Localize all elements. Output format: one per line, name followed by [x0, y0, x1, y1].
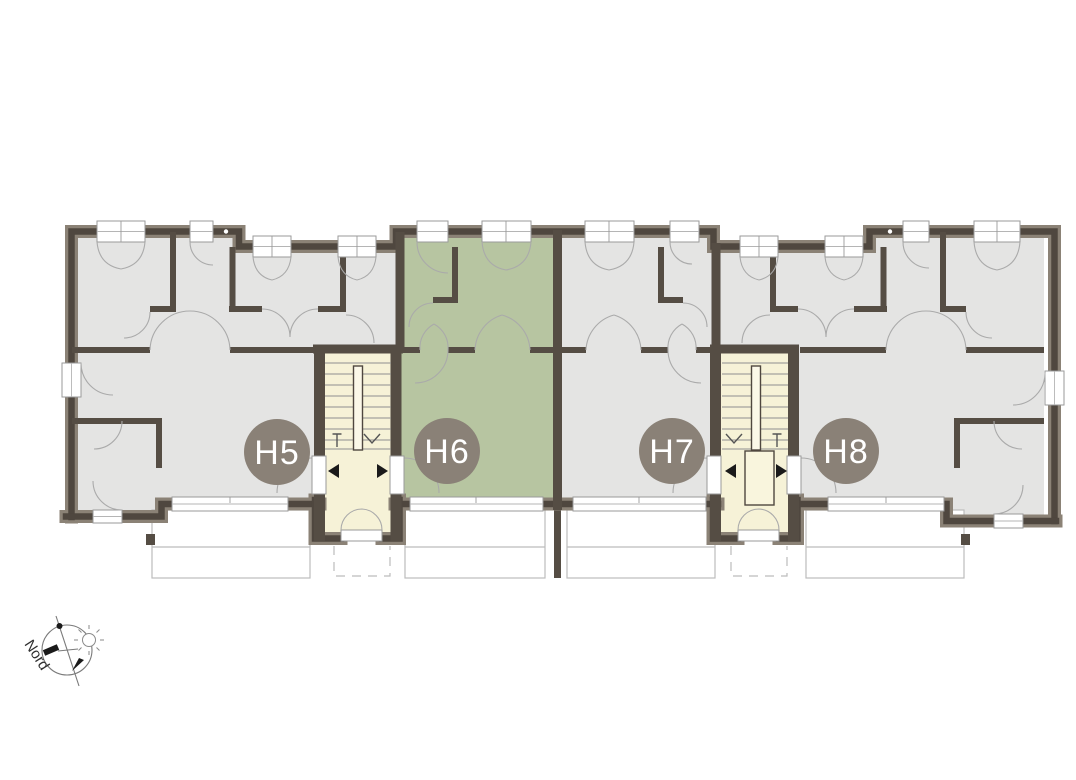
entrance-walkway-2	[731, 546, 787, 576]
entry-door-h5[interactable]	[312, 456, 326, 494]
entry-door-h6[interactable]	[390, 456, 404, 494]
svg-text:H6: H6	[424, 433, 469, 471]
terraces	[146, 510, 970, 578]
entry-door-h7[interactable]	[707, 456, 721, 494]
floor-plan-page: H5 H6 H7 H8 Nord	[0, 0, 1076, 780]
column-stub-right	[961, 534, 970, 545]
floor-plan-svg: H5 H6 H7 H8 Nord	[0, 0, 1076, 780]
unit-label-h5[interactable]: H5	[244, 419, 310, 485]
svg-text:H8: H8	[823, 433, 868, 471]
svg-text:H7: H7	[649, 433, 694, 471]
svg-text:H5: H5	[254, 434, 299, 472]
entrance-walkway-1	[334, 546, 390, 576]
column-stub-left	[146, 534, 155, 545]
sun-icon	[74, 625, 104, 655]
unit-label-h6[interactable]: H6	[414, 418, 480, 484]
entrance-door-1[interactable]	[341, 530, 382, 541]
entry-door-h8[interactable]	[787, 456, 801, 494]
unit-label-h8[interactable]: H8	[813, 418, 879, 484]
terrace-h6	[405, 510, 545, 578]
compass: Nord	[21, 616, 104, 686]
compass-arrow	[72, 658, 84, 671]
terrace-divider-wall	[554, 510, 561, 578]
unit-label-h7[interactable]: H7	[639, 418, 705, 484]
elevator	[745, 451, 774, 505]
terrace-h5	[152, 510, 310, 578]
north-label: Nord	[21, 637, 53, 674]
terrace-h7	[567, 510, 715, 578]
entrance-door-2[interactable]	[738, 530, 779, 541]
compass-north-dot	[57, 623, 63, 629]
